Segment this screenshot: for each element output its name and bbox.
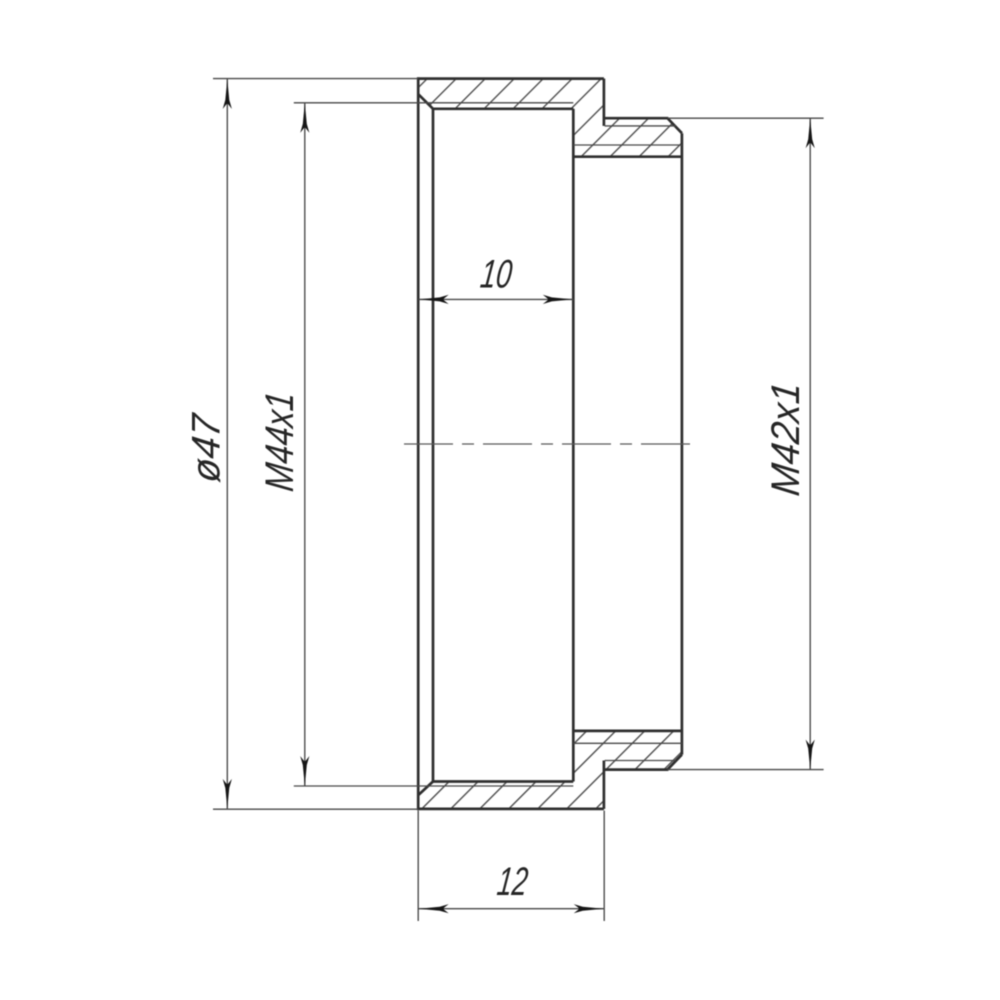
svg-text:10: 10 (478, 251, 515, 296)
svg-text:M42x1: M42x1 (763, 380, 808, 499)
svg-text:12: 12 (495, 859, 531, 904)
svg-text:ø47: ø47 (184, 410, 229, 484)
svg-text:M44x1: M44x1 (257, 389, 302, 494)
